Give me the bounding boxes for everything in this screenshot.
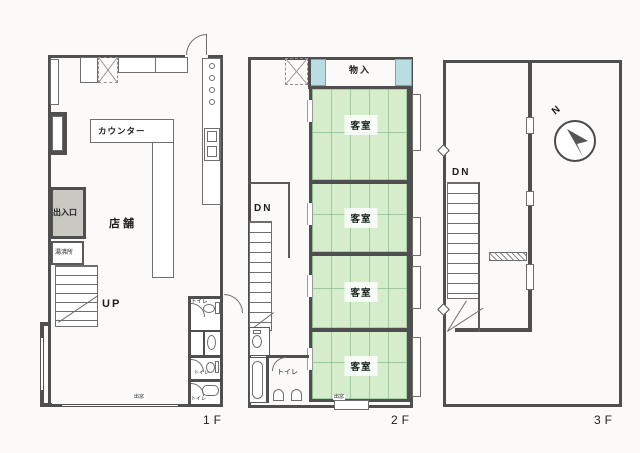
north-arrow-icon [556, 122, 598, 164]
floor-label-3f: 3F [594, 414, 616, 426]
wall-opening [526, 264, 534, 290]
staircase-down [447, 182, 479, 299]
dn-label: DN [452, 168, 470, 178]
interior-wall [455, 328, 532, 332]
floor-plan-page: カウンター 出入口 湯沸所 UP 店舗 トイレ トイレ [0, 0, 640, 453]
wall-opening [526, 191, 534, 206]
hatched-counter [489, 252, 527, 261]
wall-opening [526, 117, 534, 134]
compass-circle [554, 120, 596, 162]
floor-plan-3f: DN N 3F [0, 0, 640, 453]
